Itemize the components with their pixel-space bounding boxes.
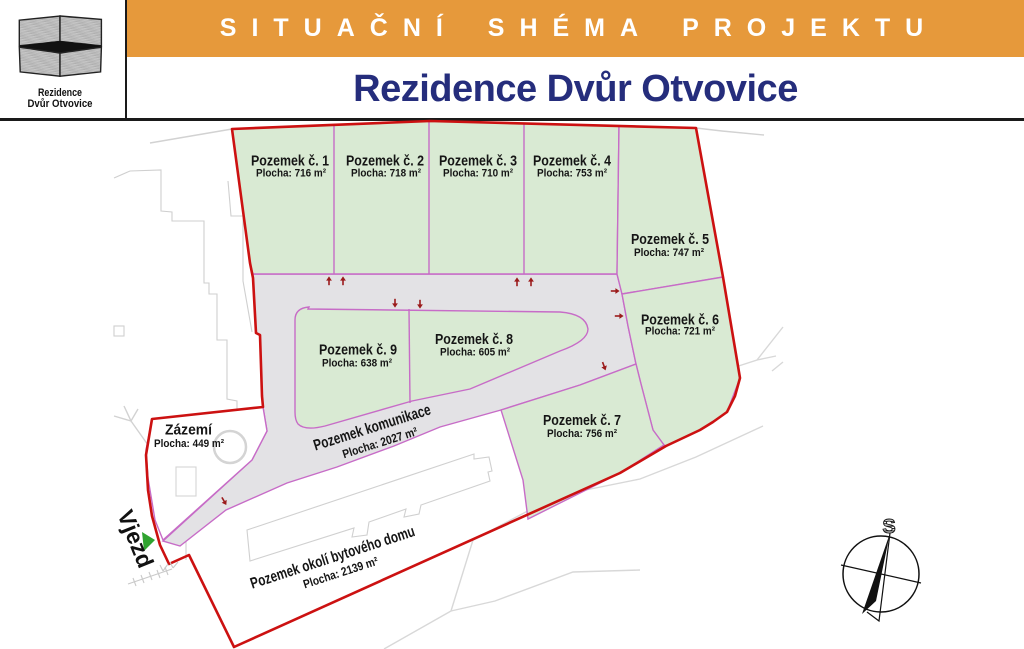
svg-text:Pozemek č. 8: Pozemek č. 8	[435, 331, 513, 348]
svg-text:Plocha: 716 m²: Plocha: 716 m²	[256, 168, 326, 180]
svg-text:Plocha: 747 m²: Plocha: 747 m²	[634, 247, 704, 259]
svg-text:Plocha: 605 m²: Plocha: 605 m²	[440, 347, 510, 359]
svg-text:Pozemek č. 5: Pozemek č. 5	[631, 231, 709, 248]
svg-text:Plocha: 718 m²: Plocha: 718 m²	[351, 168, 421, 180]
svg-text:Plocha: 449 m²: Plocha: 449 m²	[154, 438, 224, 450]
svg-text:Plocha: 638 m²: Plocha: 638 m²	[322, 358, 392, 370]
svg-text:Plocha: 721 m²: Plocha: 721 m²	[645, 326, 715, 338]
svg-text:Pozemek č. 7: Pozemek č. 7	[543, 412, 621, 429]
svg-text:Zázemí: Zázemí	[165, 423, 213, 439]
svg-text:Plocha: 756 m²: Plocha: 756 m²	[547, 428, 617, 440]
svg-text:S: S	[882, 516, 895, 538]
svg-text:Plocha: 753 m²: Plocha: 753 m²	[537, 168, 607, 180]
svg-text:Pozemek č. 9: Pozemek č. 9	[319, 342, 397, 359]
svg-text:Plocha: 710 m²: Plocha: 710 m²	[443, 168, 513, 180]
